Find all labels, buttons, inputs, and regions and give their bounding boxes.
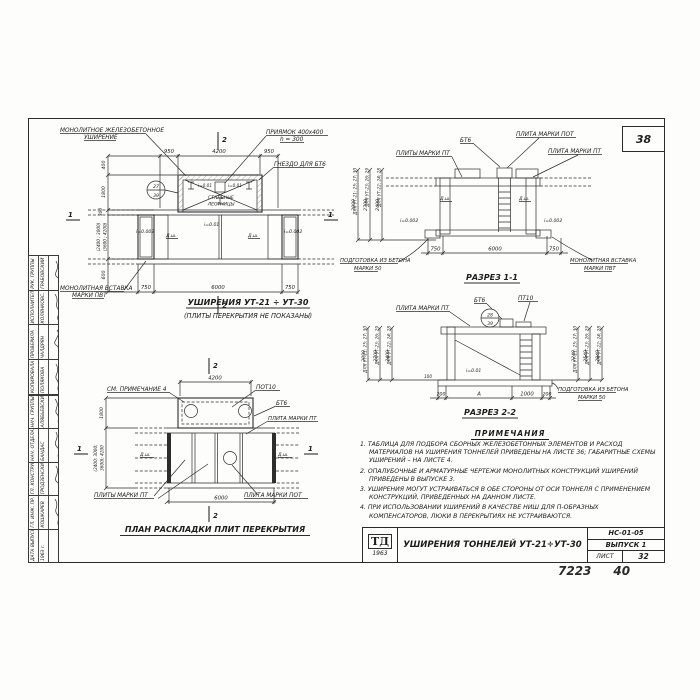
signature-scribble [49, 360, 58, 394]
title-block: ТД 1963 УШИРЕНИЯ ТОННЕЛЕЙ УТ-21÷УТ-30 НС… [362, 527, 665, 563]
signature-scribble [49, 326, 58, 360]
s22-right-value-1: 2240 [571, 350, 577, 362]
stamp-name: ГРАБОВСКИЙ [39, 256, 49, 290]
s22-right-label-1: ДЛЯ УТ-21; 25; 27; 30 [573, 326, 578, 374]
s22-title: РАЗРЕЗ 2-2 [464, 408, 516, 417]
ps-label-pot: ПЛИТА МАРКИ ПОТ [244, 493, 302, 499]
s11-label-insert-1: МОНОЛИТНАЯ ВСТАВКА [570, 258, 637, 264]
section-mark-2-top: 2 [222, 136, 227, 144]
dim-left-6: 600 [101, 271, 107, 280]
s22-detail-number: 28 [487, 313, 493, 319]
notes-header-text: ПРИМЕЧАНИЯ [471, 429, 550, 440]
s22-dim-stack-right: ДЛЯ УТ-21; 25; 27; 30 ДЛЯ УТ-23; 26; 29 … [552, 326, 604, 382]
detail-ref-number: 27 [153, 184, 159, 190]
s22-dim-small: 100 [424, 374, 432, 379]
stamp-group-management: НАЧ. ГРУППЫ АЛЯБЬЕВСКИЙ НАЧ. ОТДЕЛА БАНД… [28, 395, 59, 563]
slope-right: i=0.002 [284, 229, 302, 235]
stamp-group-executors: РУК. ГРУППЫ ГРАБОВСКИЙ ИСПОЛНИТЕЛЬ КОЛЯН… [28, 255, 59, 395]
s22-dim-2: А [476, 392, 481, 398]
label-socket: ГНЕЗДО ДЛЯ БТ6 [274, 162, 326, 168]
stamp-row: НАЧ. ГРУППЫ АЛЯБЬЕВСКИЙ [29, 396, 58, 429]
s22-dim-1: 200 [437, 392, 446, 398]
s11-dim-stack: ДЛЯ УТ-21; 25; 27; 30 ДЛЯ УТ-23; 26; 29 … [351, 168, 436, 242]
signature-scribble [49, 429, 58, 461]
stamp-role: ДАТА ВЫПУСКА [29, 530, 39, 562]
plan-top-structure [88, 175, 334, 264]
label-widening-line2: УШИРЕНИЕ [84, 135, 118, 141]
dim-top-right: 950 [264, 149, 275, 155]
stamp-row: ИСПОЛНИТЕЛЬ КОЛЯНКОВС. [29, 291, 58, 326]
signature-scribble [49, 463, 58, 495]
stamp-role: КОПИРОВАЛА [29, 360, 39, 394]
s22-labels: ПЛИТА МАРКИ ПТ БТ6 ПТ10 ПОДГОТОВКА ИЗ БЕ… [396, 296, 629, 418]
ps-labels: СМ. ПРИМЕЧАНИЕ 4 ПОТ10 БТ6 ПЛИТА МАРКИ П… [94, 385, 318, 536]
dim-left-5: (3600 ; 4200) [103, 222, 108, 251]
ps-mark-1-right: 1 [308, 445, 313, 453]
s22-right-value-3: 2840 [595, 350, 601, 362]
signature-scribble [49, 496, 58, 528]
doc-number: НС-01-05 [588, 528, 664, 540]
ps-label-pot10: ПОТ10 [256, 385, 276, 391]
ps-title: ПЛАН РАСКЛАДКИ ПЛИТ ПЕРЕКРЫТИЯ [125, 525, 305, 534]
dim-bottom-left: 750 [141, 285, 152, 291]
dim-left-1: 400 [101, 161, 107, 170]
title-block-title: УШИРЕНИЯ ТОННЕЛЕЙ УТ-21÷УТ-30 [398, 528, 588, 562]
ps-dim-left-3: 3600); 4200 [100, 445, 105, 471]
stamp-role: ИСПОЛНИТЕЛЬ [29, 291, 39, 325]
ps-axis-right: Д.ш. [277, 452, 289, 458]
ps-dim-left-1: 1800 [99, 407, 105, 419]
drawing-section-2-2: ДЛЯ УТ-21; 25; 27; 30 ДЛЯ УТ-23; 26; 29 … [340, 278, 667, 430]
stamp-name: ПОЛЯКОВА [39, 360, 49, 394]
note-item-1: 1. ТАБЛИЦА ДЛЯ ПОДБОРА СБОРНЫХ ЖЕЛЕЗОБЕТ… [360, 441, 660, 466]
s22-left-value-2: 2700 [373, 350, 379, 362]
stamp-row: ГЛ. ИНЖ. ПР. КОШКАРЕВ [29, 496, 58, 529]
s22-label-prep-1: ПОДГОТОВКА ИЗ БЕТОНА [558, 387, 629, 393]
sheet-label: ЛИСТ [588, 551, 623, 562]
ps-mark-1-left: 1 [77, 445, 82, 453]
stamp-name: КОЛЯНКОВС. [39, 291, 49, 325]
title-block-right: НС-01-05 ВЫПУСК 1 ЛИСТ 32 [588, 528, 664, 562]
dim-left-3: 300 [98, 208, 103, 216]
s11-dim-2: 6000 [488, 247, 502, 253]
slope-left: i=0.002 [136, 229, 154, 235]
ps-label-bt6: БТ6 [276, 401, 288, 407]
s11-col-value-1: 3000 [351, 199, 357, 211]
stamp-row: ГЛ. КОНСТРУКТОР ГРОДЗЕНСКИЙ [29, 463, 58, 496]
ps-mark-2-top: 2 [213, 362, 218, 370]
label-insert-line2: МАРКИ ПВТ [72, 293, 107, 299]
plan-top-subtitle: (ПЛИТЫ ПЕРЕКРЫТИЯ НЕ ПОКАЗАНЫ) [184, 312, 312, 320]
axis-joint-right: Д.ш. [247, 233, 259, 239]
logo-year: 1963 [372, 550, 387, 557]
stamp-role: ГЛ. КОНСТРУКТОР [29, 463, 39, 495]
sheet-number: 32 [623, 551, 664, 562]
dim-bottom-mid: 6000 [211, 285, 225, 291]
ps-dimensions: 4200 6000 1800 (2400; 3000; 3600); 4200 [93, 376, 276, 505]
s11-slope-left: i=0.002 [400, 218, 418, 224]
ps-mark-2-bottom: 2 [213, 512, 218, 520]
s11-structure: Д.ш. Д.ш. i=0.002 i=0.002 [386, 168, 592, 238]
s11-label-pot: ПЛИТА МАРКИ ПОТ [516, 132, 574, 138]
stamp-role: НАЧ. ОТДЕЛА [29, 429, 39, 461]
label-widening-line1: МОНОЛИТНОЕ ЖЕЛЕЗОБЕТОННОЕ [60, 128, 164, 134]
s22-slope: i=0.01 [466, 368, 481, 374]
dim-left-2: 1800 [101, 186, 107, 198]
drawing-section-1-1: ДЛЯ УТ-21; 25; 27; 30 ДЛЯ УТ-23; 26; 29 … [340, 122, 667, 292]
s11-label-prep-2: МАРКИ 50 [354, 266, 382, 272]
label-ladders-line2: ЛЕСТНИЦЫ [207, 202, 235, 208]
stamp-row: РУК. ГРУППЫ ГРАБОВСКИЙ [29, 256, 58, 291]
stamp-name: КОШКАРЕВ [39, 496, 49, 528]
ps-dim-bottom: 6000 [214, 496, 228, 502]
slope-pit-left: i=0.01 [198, 183, 212, 188]
ps-label-pt-plural: ПЛИТЫ МАРКИ ПТ [94, 493, 148, 499]
handwritten-left: 7223 [558, 564, 591, 578]
s11-dim-1: 750 [430, 247, 441, 253]
ps-structure: Д.ш. Д.ш. [135, 398, 300, 488]
plan-top-title: УШИРЕНИЯ УТ-21 ÷ УТ-30 [188, 298, 309, 307]
stamp-row: НАЧ. ОТДЕЛА БАНДАС [29, 429, 58, 462]
s22-dim-stack-left: ДЛЯ УТ-21; 25; 27; 30 ДЛЯ УТ-23; 26; 29 … [361, 326, 447, 382]
stamp-name: ГРОДЗЕНСКИЙ [39, 463, 49, 495]
stamp-row: ПРОВЕРИЛА ЧАЛДРЯН [29, 326, 58, 361]
dim-bottom-right: 750 [285, 285, 296, 291]
s22-right-value-2: 2540 [583, 350, 589, 362]
issue-number: ВЫПУСК 1 [588, 540, 664, 552]
stamp-row: ДАТА ВЫПУСКА 1963 г. [29, 530, 58, 562]
ps-dim-top: 4200 [208, 376, 222, 382]
label-ladders-line1: СТАЛЬНЫЕ [208, 195, 234, 201]
s11-dimensions: 750 6000 750 [421, 236, 568, 255]
stamp-name: 1963 г. [39, 530, 49, 562]
signature-area-empty [49, 530, 58, 562]
ps-label-pt: ПЛИТА МАРКИ ПТ [268, 416, 317, 422]
title-block-logo: ТД 1963 [363, 528, 398, 562]
stamp-role: РУК. ГРУППЫ [29, 256, 39, 290]
s11-col-value-3: 2400 [375, 199, 381, 211]
detail-ref-sheet: 39 [153, 193, 159, 199]
stamp-role: ПРОВЕРИЛА [29, 326, 39, 360]
notes-header: ПРИМЕЧАНИЯ [360, 429, 660, 438]
label-insert-line1: МОНОЛИТНАЯ ВСТАВКА [60, 286, 133, 292]
s11-label-insert-2: МАРКИ ПВТ [584, 266, 616, 272]
note-item-2: 2. ОПАЛУБОЧНЫЕ И АРМАТУРНЫЕ ЧЕРТЕЖИ МОНО… [360, 468, 660, 484]
stamp-role: ГЛ. ИНЖ. ПР. [29, 496, 39, 528]
note-item-4: 4. ПРИ ИСПОЛЬЗОВАНИИ УШИРЕНИЙ В КАЧЕСТВЕ… [360, 504, 660, 520]
stamp-row: КОПИРОВАЛА ПОЛЯКОВА [29, 360, 58, 394]
handwritten-right: 40 [613, 564, 630, 578]
s11-axis-right: Д.ш. [518, 196, 530, 202]
s11-dim-3: 750 [549, 247, 560, 253]
s11-axis-left: Д.ш. [439, 196, 451, 202]
s22-dim-3: 1000 [520, 392, 534, 398]
s11-col-value-2: 2700 [363, 199, 369, 211]
s22-dimensions: 200 А 1000 200 [430, 386, 556, 400]
s22-left-value-3: 2400 [385, 350, 391, 362]
signature-scribble [49, 291, 58, 325]
label-pit-line1: ПРИЯМОК 400х400 [266, 130, 324, 136]
dim-top-mid: 4200 [212, 149, 226, 155]
sheet-row: ЛИСТ 32 [588, 551, 664, 562]
handwritten-numbers: 7223 40 [558, 564, 630, 578]
notes-block: ПРИМЕЧАНИЯ 1. ТАБЛИЦА ДЛЯ ПОДБОРА СБОРНЫ… [360, 429, 660, 523]
s22-label-bt6: БТ6 [474, 298, 486, 304]
slope-mid: i=0.01 [204, 222, 219, 228]
section-mark-1-right: 1 [328, 211, 333, 219]
signature-scribble [49, 396, 58, 428]
stamp-name: АЛЯБЬЕВСКИЙ [39, 396, 49, 428]
s11-label-bt6: БТ6 [460, 138, 472, 144]
s22-label-prep-2: МАРКИ 50 [578, 395, 606, 401]
drawing-plan-slabs: Д.ш. Д.ш. 4200 6000 1800 (2400; 3000; 36… [58, 350, 364, 548]
s22-label-pt10: ПТ10 [518, 296, 534, 302]
s11-slope-right: i=0.002 [544, 218, 562, 224]
stamp-name: БАНДАС [39, 429, 49, 461]
s22-detail-sheet: 39 [487, 321, 493, 327]
drawing-plan-top: 950 4200 950 750 6000 750 400 1800 300 (… [58, 120, 350, 334]
label-pit-line2: h = 300 [280, 137, 304, 143]
stamp-role: НАЧ. ГРУППЫ [29, 396, 39, 428]
ps-dim-left-2: (2400; 3000; [93, 444, 98, 472]
stamp-name: ЧАЛДРЯН [39, 326, 49, 360]
axis-joint-left: Д.ш. [165, 233, 177, 239]
section-mark-1-left: 1 [68, 211, 73, 219]
slope-pit-right: i=0.01 [228, 183, 242, 188]
ps-axis-left: Д.ш. [139, 452, 151, 458]
s22-structure: 28 39 i=0.01 100 [424, 309, 552, 386]
note-item-3: 3. УШИРЕНИЯ МОГУТ УСТРАИВАТЬСЯ В ОБЕ СТО… [360, 486, 660, 502]
signature-scribble [49, 256, 58, 290]
dim-left-4: (2400 ; 3000) [96, 222, 101, 251]
s11-label-pt-plural: ПЛИТЫ МАРКИ ПТ [396, 151, 450, 157]
s22-dim-4: 200 [543, 392, 552, 398]
s11-label-pt: ПЛИТА МАРКИ ПТ [548, 149, 602, 155]
s22-label-pt: ПЛИТА МАРКИ ПТ [396, 306, 450, 312]
s11-labels: ПЛИТЫ МАРКИ ПТ БТ6 ПЛИТА МАРКИ ПОТ ПЛИТА… [340, 132, 637, 283]
logo-td: ТД [368, 534, 392, 549]
ps-label-note: СМ. ПРИМЕЧАНИЕ 4 [107, 387, 167, 393]
